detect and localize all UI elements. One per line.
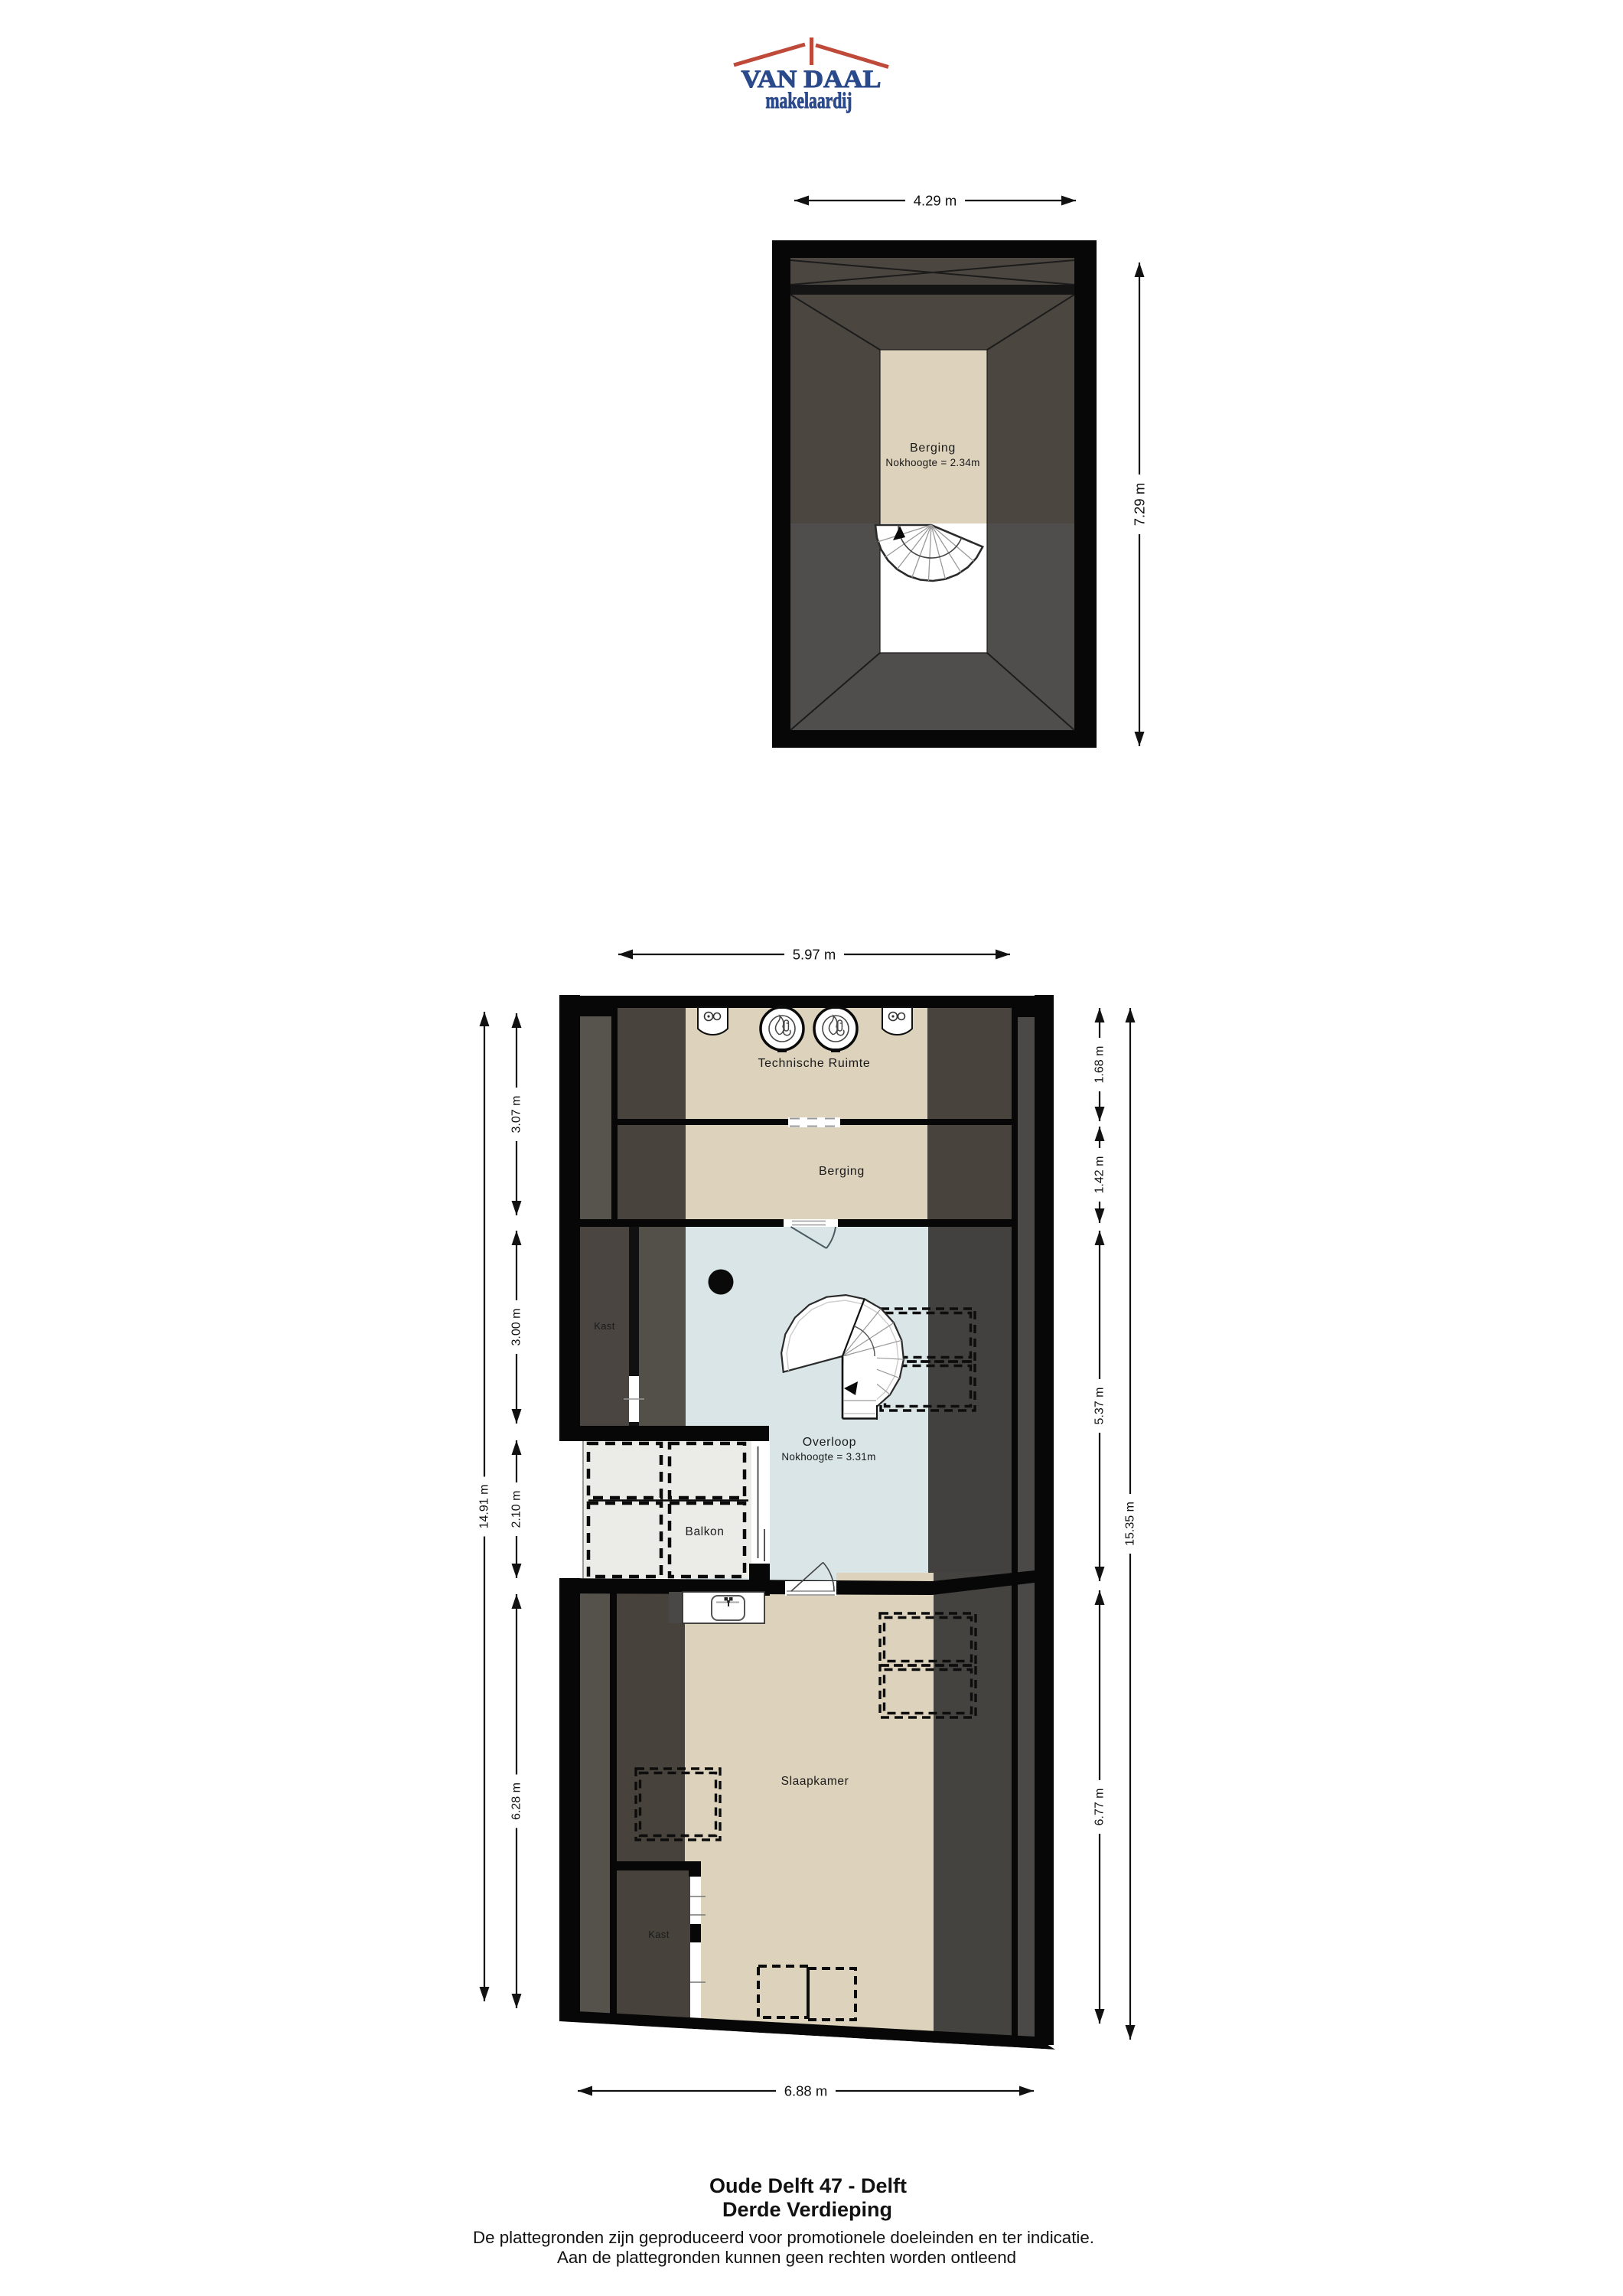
svg-text:3.07 m: 3.07 m bbox=[510, 1096, 523, 1133]
svg-text:1.68 m: 1.68 m bbox=[1093, 1046, 1106, 1084]
svg-text:6.28 m: 6.28 m bbox=[510, 1782, 523, 1820]
svg-text:Kast: Kast bbox=[594, 1320, 615, 1332]
svg-text:Berging: Berging bbox=[819, 1165, 865, 1178]
svg-text:Oude Delft 47 - Delft: Oude Delft 47 - Delft bbox=[709, 2174, 907, 2197]
svg-text:makelaardij: makelaardij bbox=[766, 88, 852, 113]
svg-text:5.97 m: 5.97 m bbox=[793, 947, 836, 963]
svg-text:Balkon: Balkon bbox=[686, 1525, 725, 1538]
svg-text:6.77 m: 6.77 m bbox=[1093, 1789, 1106, 1826]
svg-text:3.00 m: 3.00 m bbox=[510, 1309, 523, 1346]
svg-text:Berging: Berging bbox=[910, 442, 956, 455]
svg-text:De plattegronden zijn geproduc: De plattegronden zijn geproduceerd voor … bbox=[473, 2228, 1094, 2247]
svg-text:7.29 m: 7.29 m bbox=[1132, 483, 1148, 527]
svg-text:1.42 m: 1.42 m bbox=[1093, 1156, 1106, 1194]
svg-text:Nokhoogte = 2.34m: Nokhoogte = 2.34m bbox=[885, 457, 979, 468]
svg-text:4.29 m: 4.29 m bbox=[914, 193, 957, 209]
svg-text:Slaapkamer: Slaapkamer bbox=[781, 1775, 849, 1788]
svg-text:Overloop: Overloop bbox=[803, 1436, 857, 1449]
svg-text:2.10 m: 2.10 m bbox=[510, 1491, 523, 1528]
svg-text:Derde Verdieping: Derde Verdieping bbox=[722, 2198, 892, 2221]
svg-text:Kast: Kast bbox=[648, 1929, 670, 1940]
svg-text:5.37 m: 5.37 m bbox=[1093, 1388, 1106, 1425]
svg-text:Aan de plattegronden kunnen ge: Aan de plattegronden kunnen geen rechten… bbox=[557, 2248, 1016, 2267]
svg-text:Technische Ruimte: Technische Ruimte bbox=[758, 1057, 870, 1070]
svg-text:15.35 m: 15.35 m bbox=[1124, 1502, 1137, 1546]
svg-text:6.88 m: 6.88 m bbox=[784, 2083, 828, 2099]
svg-text:14.91 m: 14.91 m bbox=[478, 1485, 491, 1529]
svg-text:Nokhoogte = 3.31m: Nokhoogte = 3.31m bbox=[781, 1451, 875, 1463]
